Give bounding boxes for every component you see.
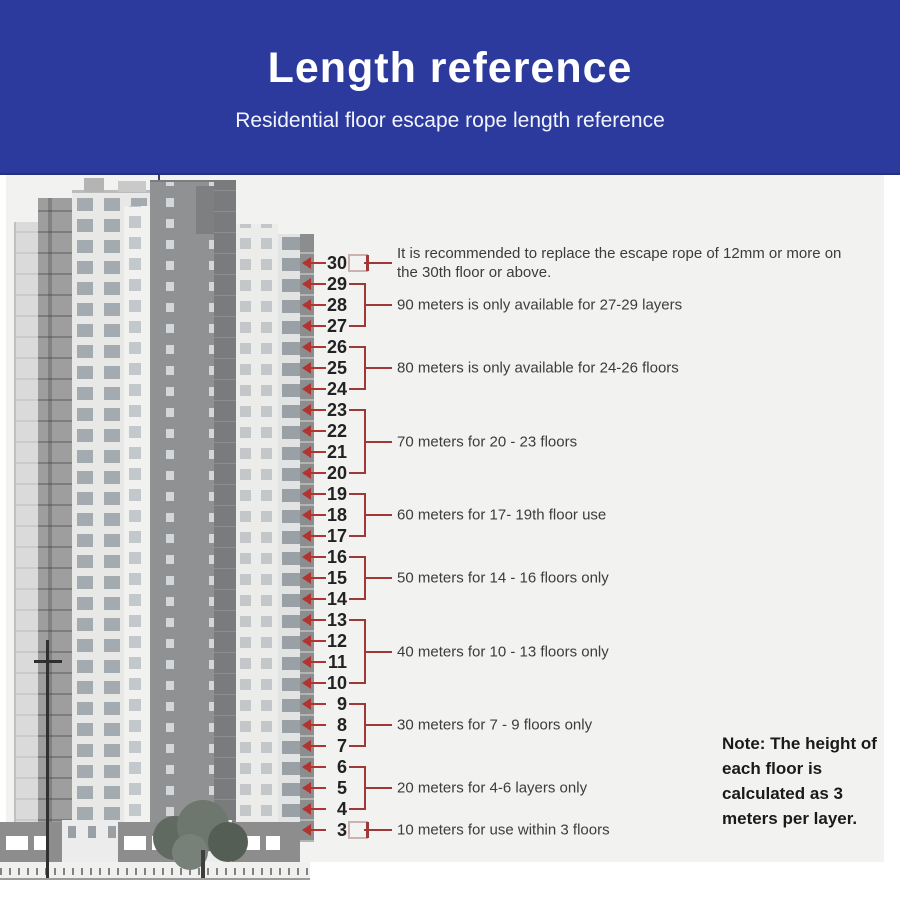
floor-marker: 23	[0, 400, 347, 420]
annotation-label: 80 meters is only available for 24-26 fl…	[397, 359, 679, 378]
annotation-label: It is recommended to replace the escape …	[397, 244, 842, 282]
floor-number: 27	[320, 316, 347, 336]
floor-number: 22	[320, 421, 347, 441]
page-title: Length reference	[0, 0, 900, 92]
floor-number: 25	[320, 358, 347, 378]
floor-number: 28	[320, 295, 347, 315]
floor-marker: 29	[0, 274, 347, 294]
floor-marker: 30	[0, 253, 347, 273]
floor-number: 29	[320, 274, 347, 294]
floor-marker: 19	[0, 484, 347, 504]
floor-marker: 26	[0, 337, 347, 357]
header-banner: Length reference Residential floor escap…	[0, 0, 900, 175]
floor-marker: 4	[0, 799, 347, 819]
infographic-canvas: Length reference Residential floor escap…	[0, 0, 900, 900]
floor-marker: 27	[0, 316, 347, 336]
annotation-label: 30 meters for 7 - 9 floors only	[397, 716, 592, 735]
annotation-label: 90 meters is only available for 27-29 la…	[397, 296, 682, 315]
floor-marker: 6	[0, 757, 347, 777]
floor-marker: 8	[0, 715, 347, 735]
floor-marker: 12	[0, 631, 347, 651]
floor-marker: 9	[0, 694, 347, 714]
floor-number: 19	[320, 484, 347, 504]
note-text: Note: The height of each floor is calcul…	[722, 731, 880, 831]
annotation-label: 40 meters for 10 - 13 floors only	[397, 642, 609, 661]
annotation-label: 10 meters for use within 3 floors	[397, 821, 610, 840]
floor-marker: 25	[0, 358, 347, 378]
floor-number: 18	[320, 505, 347, 525]
annotation-label: 50 meters for 14 - 16 floors only	[397, 569, 609, 588]
annotation-label: 60 meters for 17- 19th floor use	[397, 506, 606, 525]
floor-number: 23	[320, 400, 347, 420]
floor-number: 10	[320, 673, 347, 693]
floor-number: 20	[320, 463, 347, 483]
floor-marker: 18	[0, 505, 347, 525]
floor-number: 6	[320, 757, 347, 777]
floor-number: 14	[320, 589, 347, 609]
floor-marker: 3	[0, 820, 347, 840]
annotation-label: 20 meters for 4-6 layers only	[397, 779, 587, 798]
floor-marker: 10	[0, 673, 347, 693]
floor-number: 16	[320, 547, 347, 567]
floor-number: 24	[320, 379, 347, 399]
floor-marker: 21	[0, 442, 347, 462]
floor-marker: 24	[0, 379, 347, 399]
floor-marker: 14	[0, 589, 347, 609]
floor-marker: 15	[0, 568, 347, 588]
floor-marker: 7	[0, 736, 347, 756]
floor-number: 26	[320, 337, 347, 357]
floor-number: 13	[320, 610, 347, 630]
floor-number: 30	[320, 253, 347, 273]
page-subtitle: Residential floor escape rope length ref…	[0, 108, 900, 134]
floor-marker: 5	[0, 778, 347, 798]
floor-number: 17	[320, 526, 347, 546]
floor-marker: 17	[0, 526, 347, 546]
floor-marker: 20	[0, 463, 347, 483]
floor-number: 9	[320, 694, 347, 714]
floor-number: 3	[320, 820, 347, 840]
annotation-label: 70 meters for 20 - 23 floors	[397, 432, 577, 451]
floor-number: 4	[320, 799, 347, 819]
floor-marker: 13	[0, 610, 347, 630]
floor-number: 11	[320, 652, 347, 672]
floor-number: 8	[320, 715, 347, 735]
floor-marker: 28	[0, 295, 347, 315]
floor-marker: 11	[0, 652, 347, 672]
floor-marker: 22	[0, 421, 347, 441]
floor-number: 15	[320, 568, 347, 588]
floor-number: 21	[320, 442, 347, 462]
floor-marker: 16	[0, 547, 347, 567]
floor-number: 7	[320, 736, 347, 756]
floor-number: 12	[320, 631, 347, 651]
floor-number: 5	[320, 778, 347, 798]
